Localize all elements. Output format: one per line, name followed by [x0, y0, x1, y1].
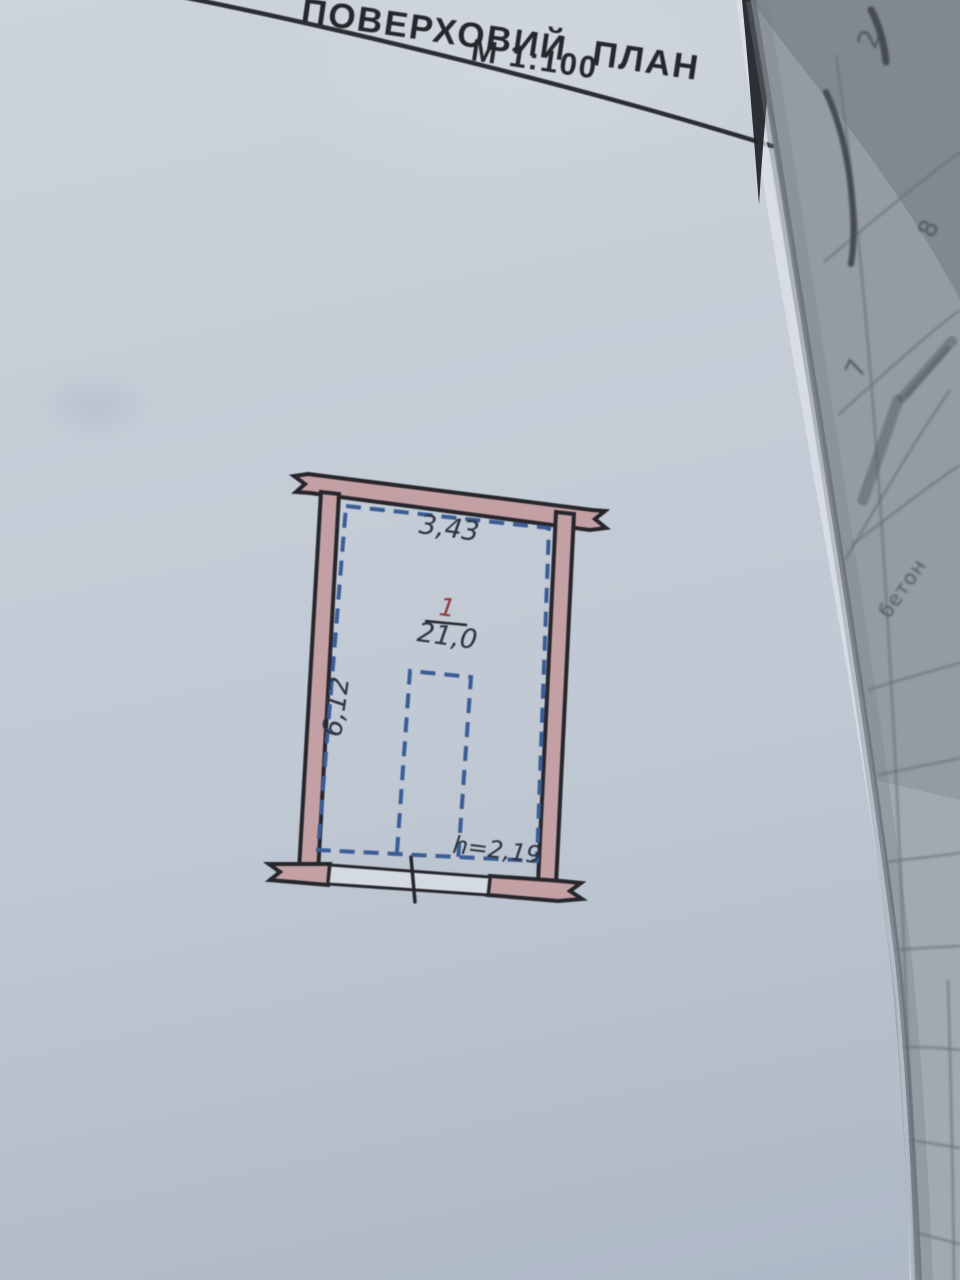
room-number-label: 1 [437, 592, 457, 623]
door-opening [328, 865, 490, 895]
door-center-tick [411, 857, 415, 902]
floor-plan-drawing: 3,43 1 21,0 6,12 h=2,19 [269, 474, 606, 902]
floor-plan-photo: ПОВЕРХОВИЙ ПЛАН М 1:100 3,43 1 21,0 6,12… [0, 0, 960, 1280]
bottom-wall-left-segment [269, 864, 330, 885]
page-header: ПОВЕРХОВИЙ ПЛАН М 1:100 [168, 0, 772, 146]
bottom-wall-right-segment [488, 876, 582, 901]
height-note-label: h=2,19 [451, 831, 543, 870]
room-area-label: 21,0 [415, 617, 479, 656]
